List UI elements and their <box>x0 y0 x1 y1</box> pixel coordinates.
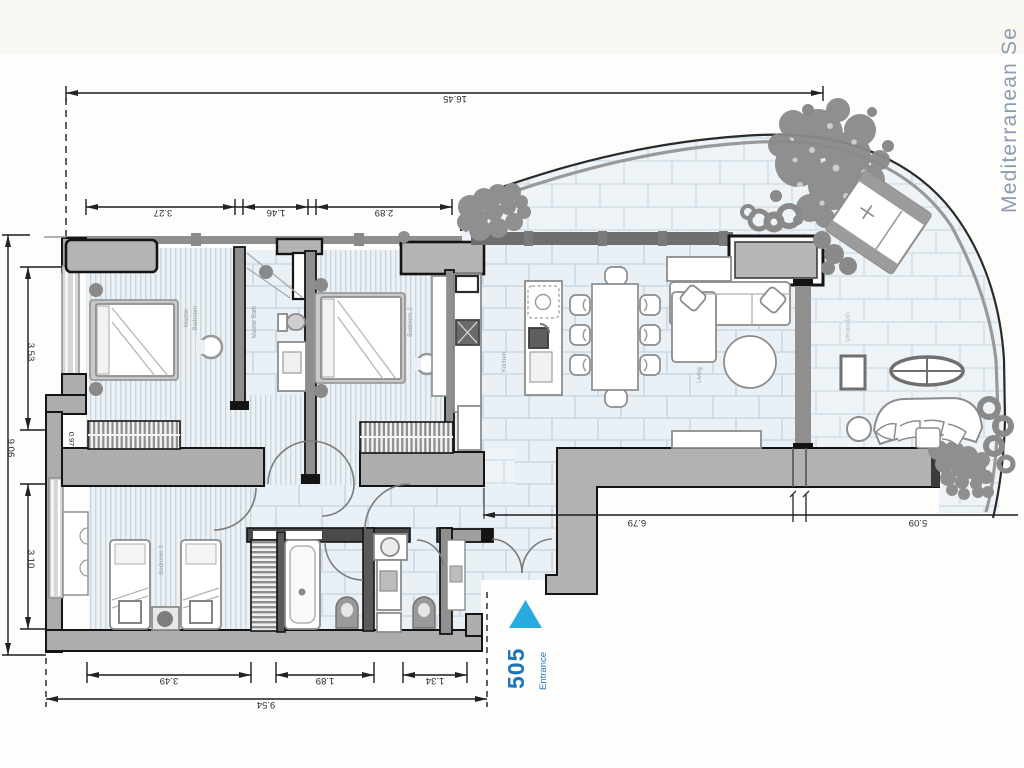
svg-text:9.06: 9.06 <box>5 439 16 458</box>
svg-text:Bedroom 2: Bedroom 2 <box>408 307 414 337</box>
svg-text:Master Bath: Master Bath <box>252 306 258 338</box>
svg-text:1.46: 1.46 <box>267 207 286 218</box>
svg-text:505: 505 <box>503 648 529 689</box>
svg-text:Living: Living <box>697 367 703 383</box>
svg-text:3.10: 3.10 <box>25 550 36 569</box>
svg-text:Bedroom: Bedroom <box>193 306 199 330</box>
svg-text:Mediterranean Se: Mediterranean Se <box>998 27 1021 213</box>
svg-text:Entrance: Entrance <box>538 652 549 690</box>
svg-text:Master: Master <box>184 309 190 327</box>
svg-text:16.45: 16.45 <box>443 93 467 104</box>
svg-text:3.53: 3.53 <box>25 343 36 362</box>
svg-text:2.89: 2.89 <box>375 207 394 218</box>
svg-text:Kitchen: Kitchen <box>502 352 508 372</box>
svg-text:6.79: 6.79 <box>628 517 647 528</box>
svg-text:5.09: 5.09 <box>909 517 928 528</box>
svg-text:3.49: 3.49 <box>160 675 179 686</box>
svg-text:Bedroom 3: Bedroom 3 <box>159 545 165 575</box>
svg-text:1.89: 1.89 <box>316 675 335 686</box>
svg-text:0.97: 0.97 <box>67 432 76 447</box>
svg-text:Verandah: Verandah <box>845 312 852 342</box>
svg-text:9.54: 9.54 <box>257 699 276 710</box>
svg-text:1.34: 1.34 <box>426 675 445 686</box>
svg-text:3.27: 3.27 <box>154 207 173 218</box>
